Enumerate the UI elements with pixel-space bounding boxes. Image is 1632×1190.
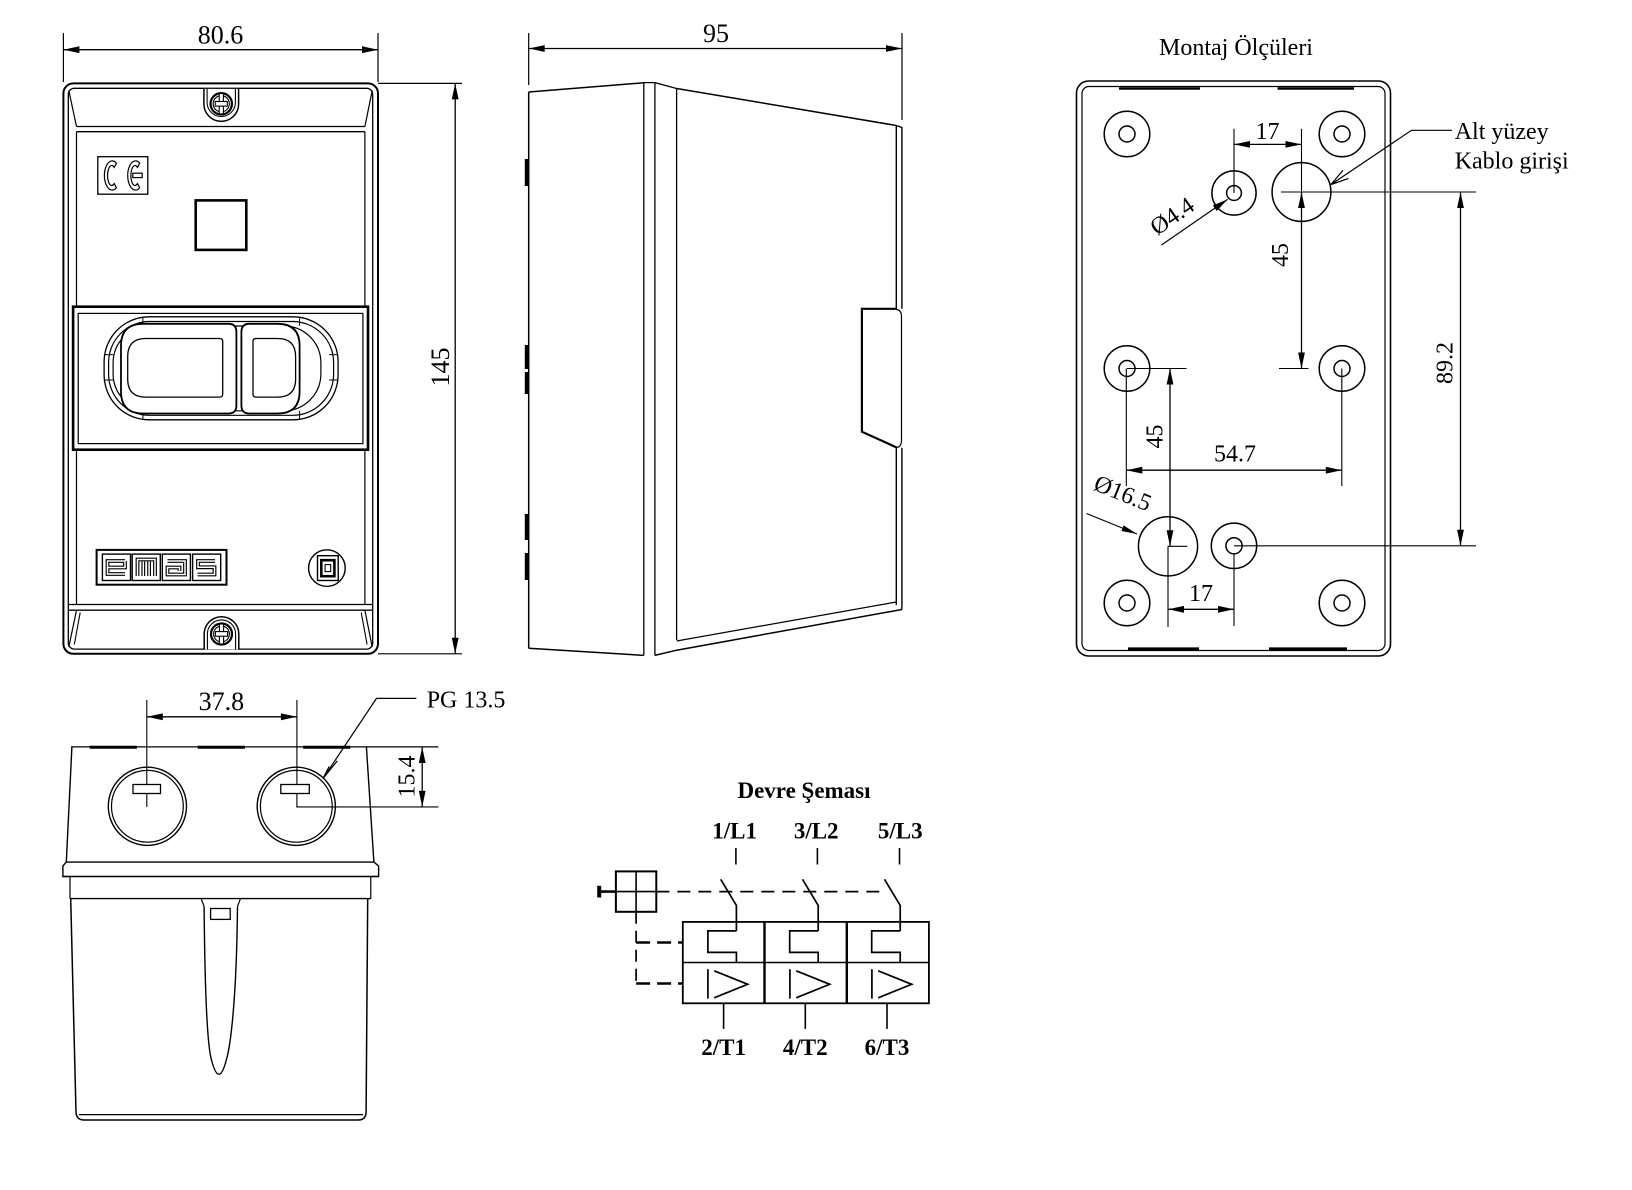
svg-text:145: 145 bbox=[426, 348, 455, 387]
svg-text:5/L3: 5/L3 bbox=[878, 819, 923, 844]
svg-text:17: 17 bbox=[1256, 119, 1280, 145]
svg-text:80.6: 80.6 bbox=[198, 21, 244, 50]
svg-text:45: 45 bbox=[1268, 243, 1294, 267]
svg-text:Kablo girişi: Kablo girişi bbox=[1455, 149, 1569, 175]
svg-text:PG 13.5: PG 13.5 bbox=[427, 687, 506, 713]
svg-text:54.7: 54.7 bbox=[1214, 442, 1256, 468]
svg-text:4/T2: 4/T2 bbox=[783, 1035, 828, 1060]
svg-text:3/L2: 3/L2 bbox=[794, 819, 839, 844]
svg-text:Montaj Ölçüleri: Montaj Ölçüleri bbox=[1159, 35, 1313, 61]
svg-text:15.4: 15.4 bbox=[394, 756, 420, 798]
svg-text:Alt yüzey: Alt yüzey bbox=[1455, 119, 1549, 145]
svg-text:95: 95 bbox=[703, 19, 729, 48]
svg-text:89.2: 89.2 bbox=[1433, 342, 1459, 384]
svg-text:6/T3: 6/T3 bbox=[865, 1035, 910, 1060]
svg-text:Ø16.5: Ø16.5 bbox=[1090, 471, 1155, 517]
svg-text:17: 17 bbox=[1189, 581, 1213, 607]
svg-text:37.8: 37.8 bbox=[199, 687, 245, 716]
svg-text:Ø4.4: Ø4.4 bbox=[1146, 193, 1200, 241]
svg-text:1/L1: 1/L1 bbox=[712, 819, 757, 844]
svg-text:45: 45 bbox=[1143, 425, 1169, 449]
svg-text:Devre Şeması: Devre Şeması bbox=[737, 778, 871, 803]
svg-text:2/T1: 2/T1 bbox=[701, 1035, 746, 1060]
